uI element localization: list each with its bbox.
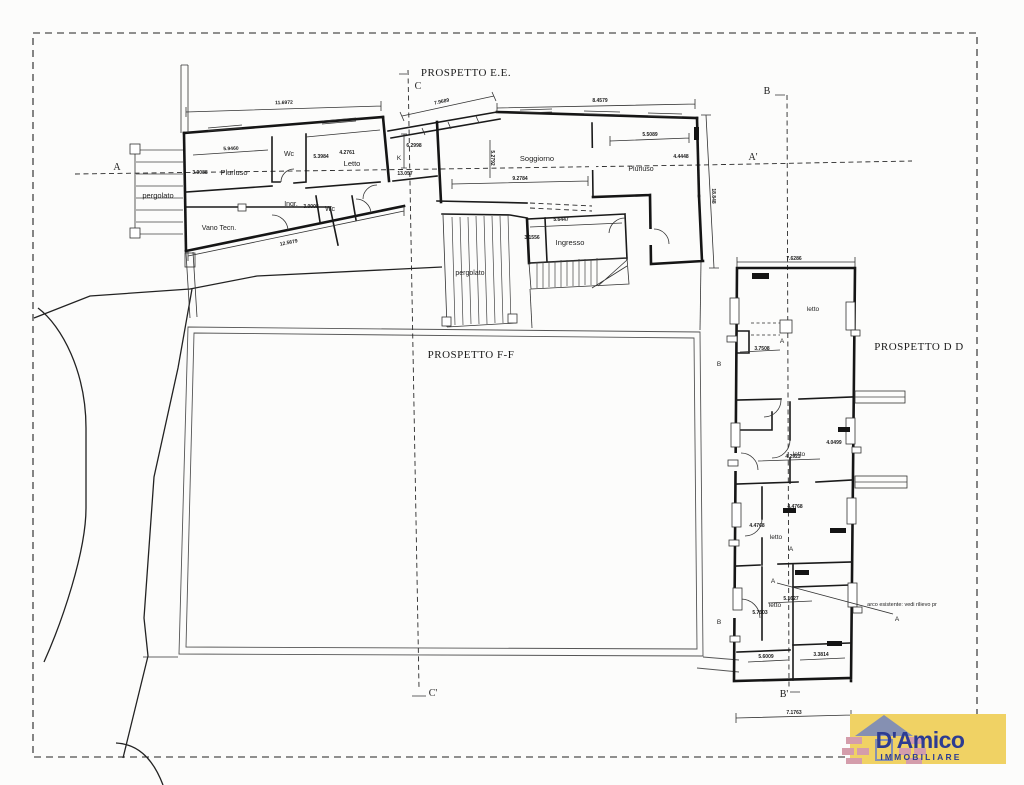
dim-plur1-l: 3.9088 [192, 170, 208, 176]
dim-wing-niche: 3.7508 [754, 346, 770, 352]
label-k: K [397, 155, 402, 162]
site-boundary-lines [34, 267, 442, 785]
logo-brand-text: D'Amico [876, 727, 965, 753]
label-b-wing-upper: B [717, 361, 721, 368]
dim-ingresso-h: 3.1556 [524, 235, 540, 241]
dim-letto-b: 4.2761 [339, 150, 355, 156]
section-label-b-prime: B' [780, 689, 789, 700]
label-a-marker-4: A [895, 616, 900, 623]
building-right-wing [727, 268, 907, 681]
building-right-block [437, 109, 703, 328]
section-label-c: C [415, 81, 422, 92]
label-a-marker-1: A [780, 338, 785, 345]
room-label-ingresso: Ingresso [556, 238, 585, 247]
dim-right-v: 18.848 [710, 188, 716, 204]
section-label-a: A [113, 162, 121, 173]
dim-sog-top: 8.4579 [592, 98, 608, 104]
logo-tagline-text: IMMOBILIARE [880, 752, 961, 762]
dim-wing-r4a: 5.7503 [752, 610, 768, 616]
room-label-plurluso-left: Plurluso [220, 168, 247, 177]
dimension-labels: 11.6972 12.5679 7.9689 8.4579 5.5089 4.4… [192, 97, 842, 716]
dim-sog-h: 5.2792 [489, 150, 495, 166]
building-k-vestibule [388, 112, 500, 202]
label-a-marker-2: A [789, 546, 794, 553]
dim-wing-r2a: 4.0499 [826, 440, 842, 446]
room-label-pergolato-left: pergolato [142, 191, 173, 200]
dim-ingr-w: 3.0008 [303, 204, 319, 210]
dim-main-bottom: 12.5679 [279, 238, 298, 247]
room-label-letto-main: Letto [344, 159, 361, 168]
dim-wing-r3a: 4.4768 [749, 523, 765, 529]
label-prospetto-ee: PROSPETTO E.E. [421, 67, 511, 79]
dim-wing-r3b: 4.4768 [787, 504, 803, 510]
room-label-wc-bottom: Wc [325, 206, 336, 213]
room-label-plurluso-right: Plurluso [628, 166, 653, 173]
agency-logo: D'Amico IMMOBILIARE [842, 714, 1006, 764]
room-label-letto-4: letto [769, 602, 782, 609]
courtyard-outline [179, 262, 739, 672]
room-label-letto-1: letto [807, 306, 820, 313]
room-label-letto-3: letto [770, 534, 783, 541]
annotation-arco: arco esistente: vedi rilievo pr [867, 602, 937, 608]
dim-k-a: 6.2998 [406, 143, 422, 149]
dim-plur2-h: 4.4448 [673, 154, 689, 160]
plan-labels: PROSPETTO E.E. PROSPETTO F-F PROSPETTO D… [113, 67, 963, 700]
section-label-a-prime: A' [748, 152, 757, 163]
label-a-marker-3: A [771, 578, 776, 585]
dim-letto-a: 5.3984 [313, 154, 329, 160]
section-label-c-prime: C' [429, 688, 438, 699]
dim-sog-w: 9.2784 [512, 176, 528, 182]
dim-wing-r4b: 5.1627 [783, 596, 799, 602]
dim-band: 7.9689 [434, 97, 450, 106]
room-label-pergolato-center: pergolato [455, 270, 484, 277]
dim-wing-top: 7.6286 [786, 256, 802, 262]
dim-wing-r4d: 3.3814 [813, 652, 829, 658]
label-b-wing-lower: B [717, 619, 721, 626]
section-line-c [408, 70, 419, 688]
dim-k-b: 13.057 [397, 171, 413, 177]
dimension-lines [186, 92, 855, 723]
room-label-vano-tecn: Vano Tecn. [202, 225, 236, 232]
dim-plur1-w: 5.9460 [223, 146, 239, 153]
floor-plan-drawing: PROSPETTO E.E. PROSPETTO F-F PROSPETTO D… [0, 0, 1024, 785]
dim-ingresso-w: 5.6447 [553, 217, 569, 223]
section-label-b: B [764, 86, 771, 97]
room-label-wc-top: Wc [284, 151, 295, 158]
floor-plan-sheet: PROSPETTO E.E. PROSPETTO F-F PROSPETTO D… [0, 0, 1024, 785]
dim-wing-bottom: 7.1763 [786, 710, 802, 716]
dim-wing-r2b: 4.2923 [785, 454, 801, 460]
dim-main-top: 11.6972 [275, 100, 293, 107]
label-prospetto-dd: PROSPETTO D D [874, 341, 963, 353]
label-prospetto-ff: PROSPETTO F-F [428, 349, 515, 361]
dim-wing-r4c: 5.6009 [758, 654, 774, 660]
room-label-soggiorno: Soggiorno [520, 154, 554, 163]
room-label-ingr: Ingr. [284, 201, 298, 208]
dim-plur2-w: 5.5089 [642, 132, 658, 138]
